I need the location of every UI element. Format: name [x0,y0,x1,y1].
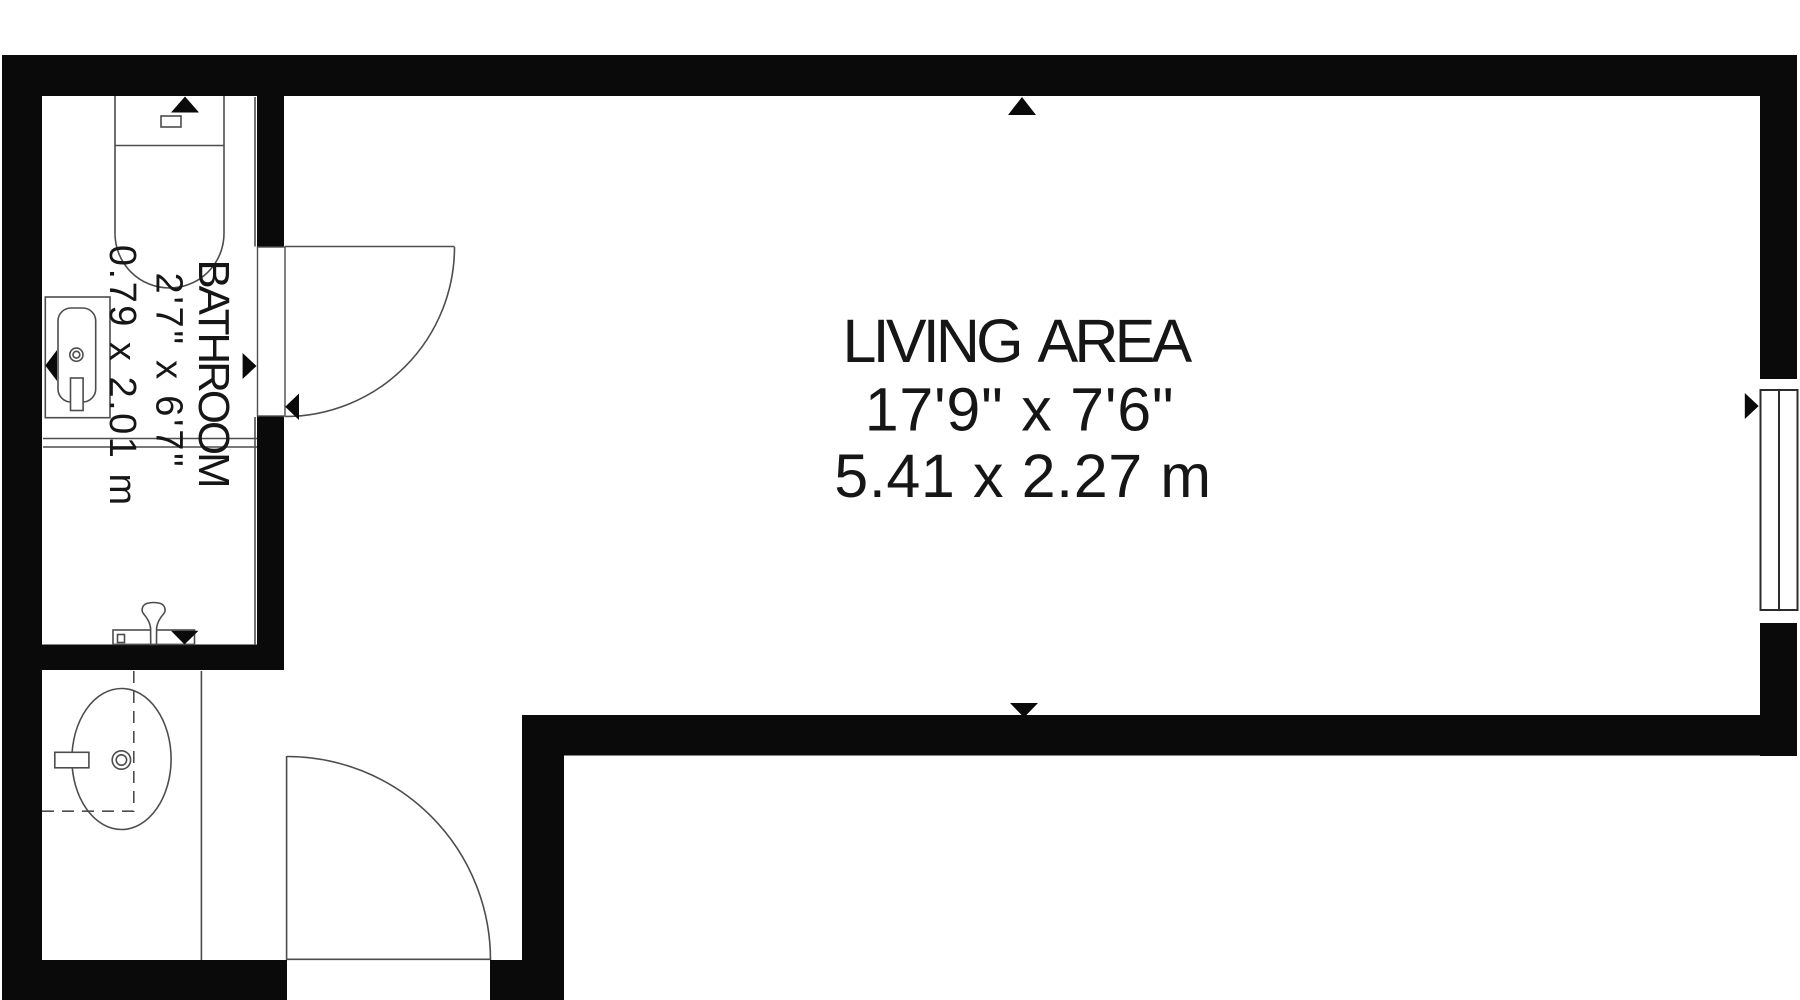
svg-text:BATHROOM: BATHROOM [189,259,238,486]
svg-text:0.79 x 2.01 m: 0.79 x 2.01 m [101,245,143,508]
svg-text:2'7" x 6'7": 2'7" x 6'7" [147,273,189,470]
svg-text:5.41 x 2.27 m: 5.41 x 2.27 m [834,442,1211,510]
svg-text:LIVING AREA: LIVING AREA [843,307,1193,375]
svg-text:17'9" x 7'6": 17'9" x 7'6" [865,376,1175,444]
